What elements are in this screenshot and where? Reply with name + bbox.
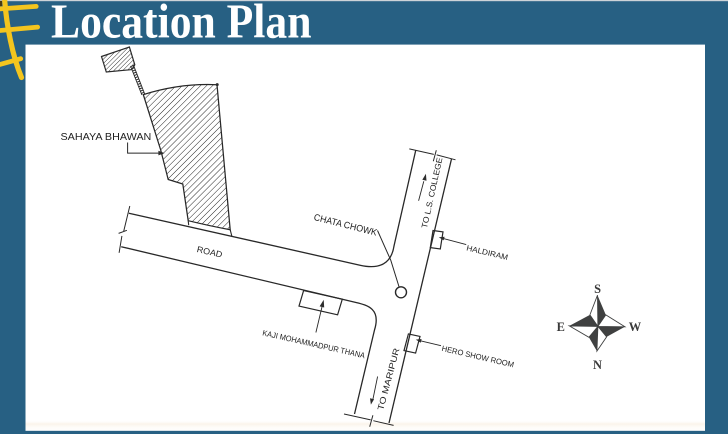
svg-text:N: N (593, 358, 602, 372)
svg-text:S: S (594, 282, 601, 296)
svg-text:Location Plan: Location Plan (51, 0, 312, 49)
svg-text:W: W (629, 320, 642, 334)
svg-text:E: E (557, 320, 565, 334)
svg-text:SAHAYA BHAWAN: SAHAYA BHAWAN (61, 132, 152, 143)
